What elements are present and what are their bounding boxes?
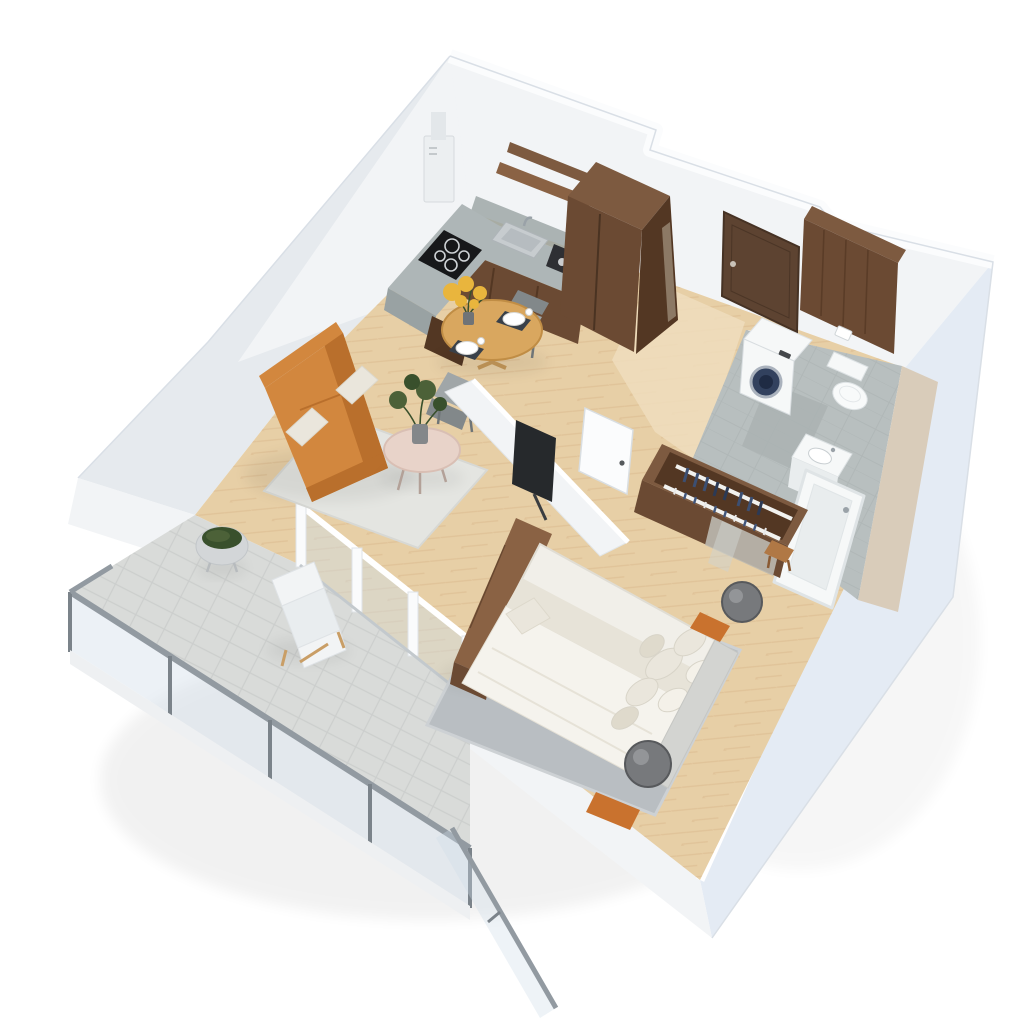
cup-1 [526,309,533,316]
cup-2 [478,338,485,345]
plate-2 [456,342,478,355]
sphere-lamp-1 [722,582,762,622]
entry-door-handle [730,261,736,267]
vase [463,312,474,325]
lamp-2-highlight [633,749,649,765]
sphere-lamp-2 [625,741,671,787]
sink-faucet [831,448,835,452]
range-hood [424,136,454,202]
round-planter [196,527,248,576]
hood-chimney [431,112,446,140]
floorplan-stage [0,0,1024,1024]
interior-door-handle [619,460,624,465]
plate-1 [503,313,525,326]
lamp-1-highlight [729,589,743,603]
plant-vase [412,424,428,444]
tub-faucet [843,507,849,513]
apartment-3d-floorplan [0,0,1024,1024]
